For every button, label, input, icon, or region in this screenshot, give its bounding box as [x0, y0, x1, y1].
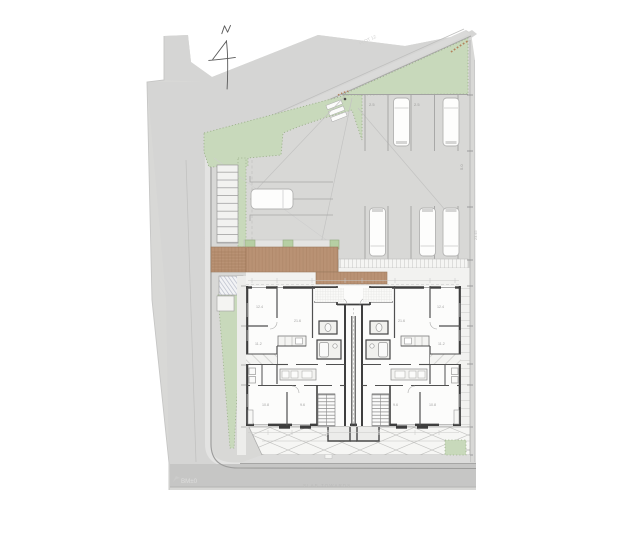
svg-text:2.5: 2.5: [369, 102, 375, 107]
svg-text:BM±0: BM±0: [181, 478, 198, 485]
svg-text:2.5: 2.5: [414, 102, 420, 107]
svg-text:21.6: 21.6: [294, 319, 301, 323]
svg-text:23.45: 23.45: [474, 230, 478, 240]
svg-text:9.6: 9.6: [393, 403, 398, 407]
svg-text:12.4: 12.4: [256, 305, 263, 309]
svg-text:10.8: 10.8: [429, 403, 436, 407]
svg-text:12.4: 12.4: [437, 305, 444, 309]
svg-text:21.6: 21.6: [398, 319, 405, 323]
svg-text:11.2: 11.2: [438, 342, 445, 346]
svg-text:5.0: 5.0: [459, 164, 464, 170]
svg-text:SLAB TOWARDS: SLAB TOWARDS: [303, 483, 351, 488]
svg-text:9.6: 9.6: [300, 403, 305, 407]
svg-text:10.8: 10.8: [262, 403, 269, 407]
svg-text:11.2: 11.2: [255, 342, 262, 346]
